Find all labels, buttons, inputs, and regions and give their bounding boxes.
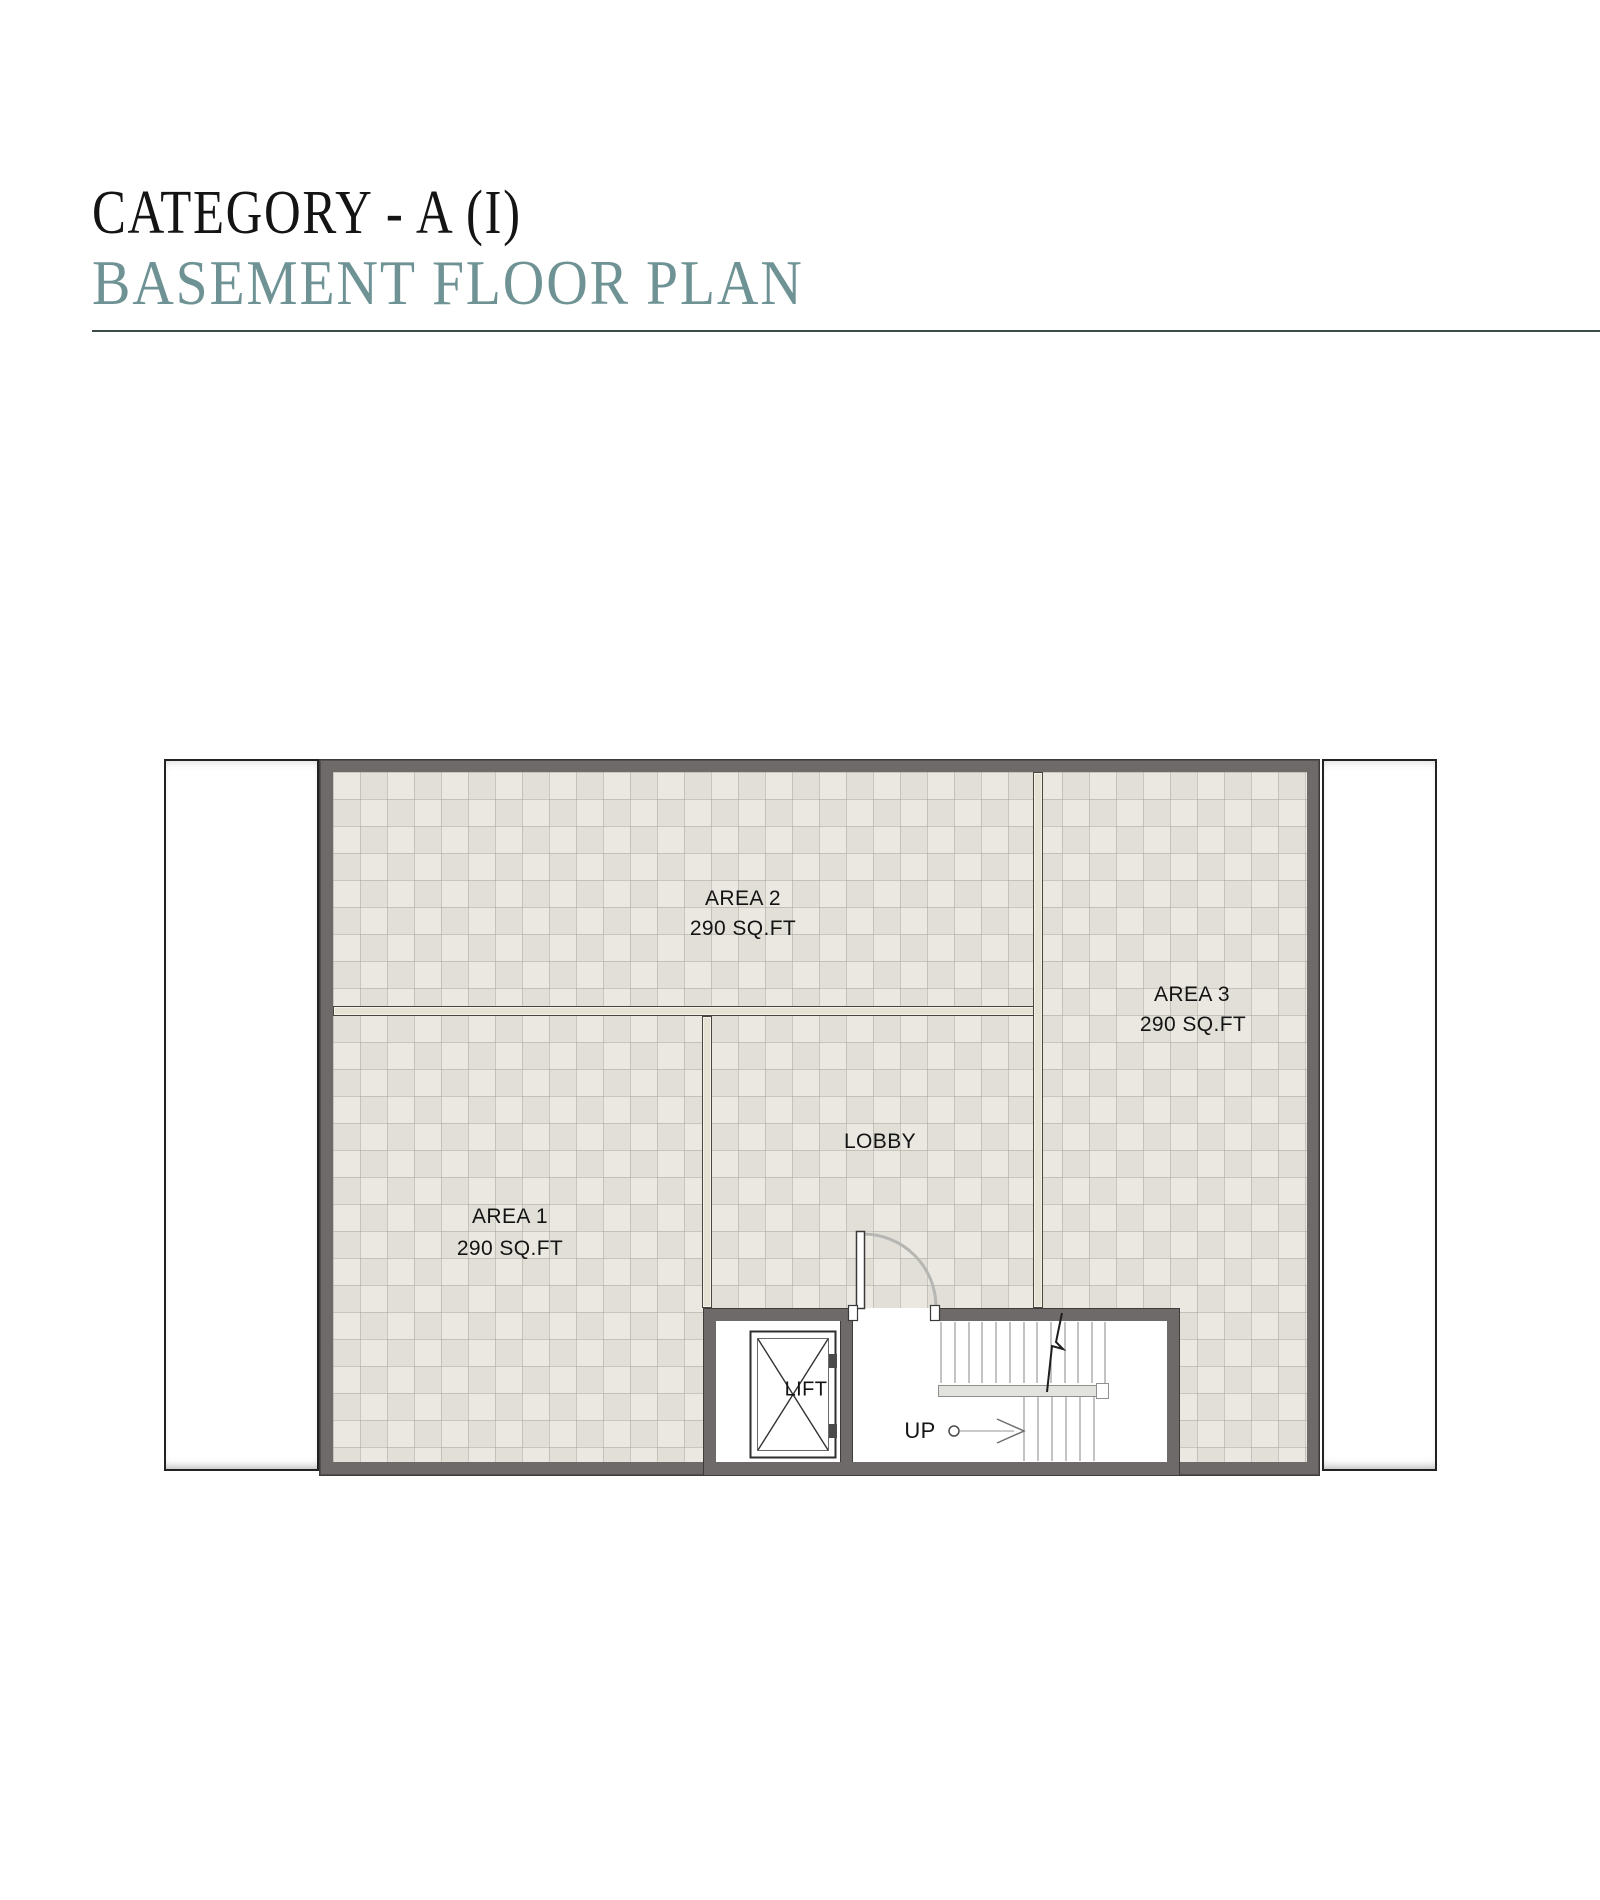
room-area-area1: 290 SQ.FT [457,1237,563,1261]
room-label-area3: AREA 3 [1154,983,1230,1007]
service-enclosure-floor [716,1321,1167,1462]
room-label-area2: AREA 2 [705,887,781,911]
room-area-area3: 290 SQ.FT [1140,1013,1246,1037]
page-subtitle: BASEMENT FLOOR PLAN [92,246,804,320]
page-title: CATEGORY - A (I) [92,178,522,249]
room-label-lobby: LOBBY [844,1130,916,1154]
title-divider-line [92,330,1600,332]
right-annex-outline [1322,759,1437,1471]
partition-wall-area1 [702,1016,712,1308]
partition-wall-area2 [333,1006,1040,1016]
lift-shaft-wall [840,1321,853,1462]
stairs-up-label: UP [904,1418,935,1444]
lift-label: LIFT [785,1379,828,1402]
room-label-area1: AREA 1 [472,1205,548,1229]
lobby-door-opening [853,1308,938,1321]
room-area-area2: 290 SQ.FT [690,917,796,941]
partition-wall-area3 [1033,772,1043,1308]
left-annex-outline [164,759,319,1471]
